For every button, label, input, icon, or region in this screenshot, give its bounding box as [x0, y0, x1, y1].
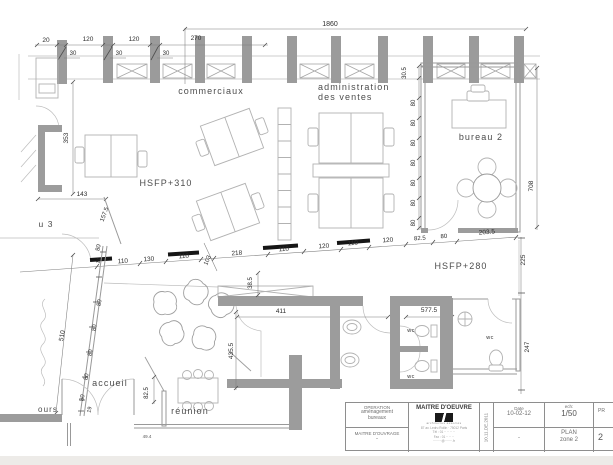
facade-wall: [19, 36, 540, 100]
dim-80-b5: 80: [411, 179, 417, 186]
dim-20: 20: [42, 37, 50, 44]
dim-1860: 1860: [322, 21, 338, 28]
admin-desks: [308, 113, 394, 228]
dim-80-w3: 80: [87, 348, 94, 356]
dim-143: 143: [77, 191, 88, 198]
floor-plan-drawing: 186020120120270303030353143157.580171101…: [0, 0, 613, 465]
doc-type: PR: [598, 409, 613, 415]
dim-120-a: 120: [83, 36, 94, 43]
dim-30-5: 30.5: [402, 67, 408, 79]
plan-line1: PLAN: [545, 430, 593, 437]
dim-80-w2: 80: [91, 323, 98, 331]
dim-120-d: 120: [382, 237, 394, 245]
floor-plan-page: 186020120120270303030353143157.580171101…: [0, 0, 613, 465]
dim-411: 411: [276, 308, 287, 315]
dim-225: 225: [520, 254, 527, 265]
operation-line2: bureaux: [346, 416, 408, 422]
room-label-reunion: réunion: [171, 406, 209, 416]
level-label-hsfp-280: HSFP+280: [434, 261, 487, 271]
plan-line2: zone 2: [545, 437, 593, 444]
dim-577-5: 577.5: [421, 307, 438, 314]
dim-38-5: 38.5: [248, 277, 254, 289]
architect-caption: architectes associés: [409, 422, 479, 425]
round-table: [457, 158, 517, 218]
dim-435-5: 435.5: [228, 342, 235, 359]
level-label-hsfp-310: HSFP+310: [139, 178, 192, 188]
desk-double-straight: [75, 135, 147, 177]
room-label-wc-1: wc: [406, 328, 415, 334]
sink-1: [343, 320, 361, 334]
desk-double-rotated-1: [191, 105, 273, 169]
date-cell: Date 10-02-12: [493, 403, 544, 427]
dim-80-b4: 80: [411, 159, 417, 166]
dim-353: 353: [63, 132, 70, 143]
dim-157-5: 157.5: [100, 206, 111, 223]
dim-80-b6: 80: [411, 199, 417, 206]
dim-30-b: 30: [116, 51, 123, 57]
structural-columns: [57, 36, 524, 84]
dim-270: 270: [191, 35, 202, 42]
dim-80-w5: 80: [79, 393, 86, 401]
room-label-wc-3: wc: [485, 335, 494, 341]
dim-110-a: 110: [117, 258, 128, 266]
room-label-des-ventes: des ventes: [318, 92, 373, 102]
dim-247: 247: [524, 341, 531, 352]
dim-49-4: 49.4: [143, 434, 152, 439]
wc-room-door-arc: [488, 299, 512, 323]
architect-address: 87 av. Ledru Rollin · 75012 ParisTél : 0…: [409, 426, 479, 443]
dim-203-5: 203.5: [479, 228, 496, 236]
maitre-ouvrage-value: -: [346, 436, 408, 443]
dim-80-a: 80: [440, 234, 448, 240]
dim-80-wall-top: 80: [95, 243, 102, 251]
dim-82-5-a: 82.5: [414, 236, 427, 243]
doc-type-cell: PR: [593, 403, 613, 427]
dim-103: 103: [203, 254, 213, 266]
toilet-1: [415, 326, 429, 337]
scale-cell: ech: 1/50: [544, 403, 593, 427]
desk-double-rotated-2: [187, 180, 269, 244]
maitre-oeuvre-cell: MAITRE D'OEUVRE architectes associés 87 …: [408, 403, 479, 452]
date-value: 10-02-12: [494, 411, 544, 418]
maitre-oeuvre-label: MAITRE D'OEUVRE: [409, 405, 479, 412]
bureau-2-room: [417, 63, 539, 233]
dim-19: 19: [86, 406, 93, 413]
dim-80-b1: 80: [411, 99, 417, 106]
dim-80-b7: 80: [411, 219, 417, 226]
accueil-area: [0, 276, 251, 446]
stamp-vertical-text: 10.11.DE.2011: [483, 405, 488, 451]
dim-110-d: 110: [347, 240, 358, 248]
room-label-wc-2: wc: [406, 374, 415, 380]
maitre-ouvrage-cell: MAITRE D'OUVRAGE -: [346, 427, 408, 452]
room-label-administration: administration: [318, 82, 389, 92]
scale-value: 1/50: [545, 409, 593, 418]
dim-130: 130: [143, 256, 155, 264]
shaft-hatch: [21, 135, 36, 182]
dim-110-c: 110: [278, 246, 289, 254]
doc-number-cell: 2: [593, 427, 613, 452]
corridor-door-arc: [363, 306, 390, 333]
dim-708: 708: [528, 180, 535, 191]
sink-2: [341, 353, 359, 367]
room-label-accueil: accueil: [92, 378, 128, 388]
title-block: OPERATION aménagement bureaux MAITRE D'O…: [345, 402, 613, 451]
dim-510: 510: [58, 329, 67, 341]
stamp-cell: 10.11.DE.2011: [479, 403, 493, 452]
date-below-cell: -: [493, 427, 544, 452]
dim-30-a: 30: [70, 51, 77, 57]
room-label-commerciaux: commerciaux: [178, 86, 244, 96]
dim-80-w1: 80: [96, 298, 103, 306]
dim-80-b2: 80: [411, 119, 417, 126]
dim-110-b: 110: [178, 253, 189, 261]
meeting-table: [178, 378, 218, 403]
doc-number: 2: [598, 432, 613, 442]
dim-30-c: 30: [163, 51, 170, 57]
bureau-2-door-arc: [428, 200, 458, 230]
dim-218: 218: [231, 250, 243, 258]
open-space-furniture: [75, 105, 394, 244]
reunion-room: [134, 355, 342, 430]
dim-82-5-reunion: 82.5: [144, 387, 150, 399]
page-footer-strip: [0, 456, 613, 465]
bureau-2-desk: [452, 100, 506, 128]
toilet-2: [415, 361, 429, 372]
toilet-3: [490, 350, 503, 366]
date-below-value: -: [494, 435, 544, 442]
reception-counter: [236, 306, 261, 377]
dim-80-b3: 80: [411, 139, 417, 146]
operation-cell: OPERATION aménagement bureaux: [346, 403, 408, 427]
room-label-bureau-2: bureau 2: [459, 132, 503, 142]
dim-120-b: 120: [129, 36, 140, 43]
room-label-bureau-3-partial: u 3: [38, 219, 53, 229]
cabinet-strip: [278, 108, 291, 240]
room-label-ours-partial: ours: [38, 405, 58, 414]
dim-120-c: 120: [318, 243, 330, 251]
plan-cell: PLAN zone 2: [544, 427, 593, 452]
stair-squiggle: [41, 299, 46, 386]
